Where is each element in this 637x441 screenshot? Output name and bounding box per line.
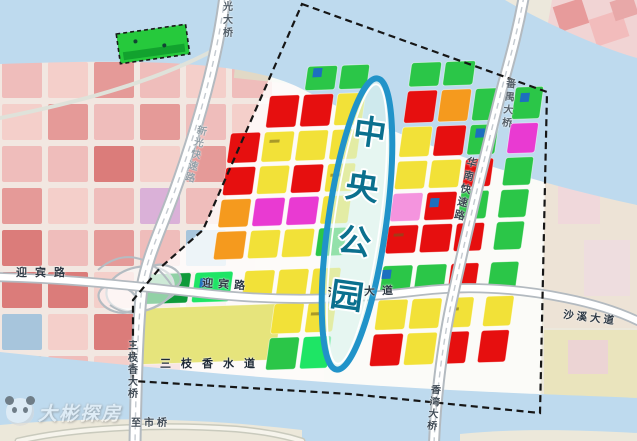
label-sanzhixiang-bridge: 三枝香大桥 <box>125 340 136 400</box>
panda-logo-icon <box>6 398 34 426</box>
watermark: 大彬探房 <box>6 398 122 426</box>
label-to-shiqiao: 至市桥 <box>131 419 170 430</box>
planning-map: 光大桥新光快速路番禺大桥华南快速路迎宾路迎宾路沙溪大道沙溪大道三枝香水道三枝香大… <box>0 0 637 441</box>
watermark-text: 大彬探房 <box>38 399 122 426</box>
label-yingbin-road-west: 迎宾路 <box>16 268 73 280</box>
label-guangda-bridge: 光大桥 <box>220 1 231 40</box>
map-canvas <box>0 0 637 441</box>
label-sanzhixiang-waterway: 三枝香水道 <box>160 359 265 371</box>
